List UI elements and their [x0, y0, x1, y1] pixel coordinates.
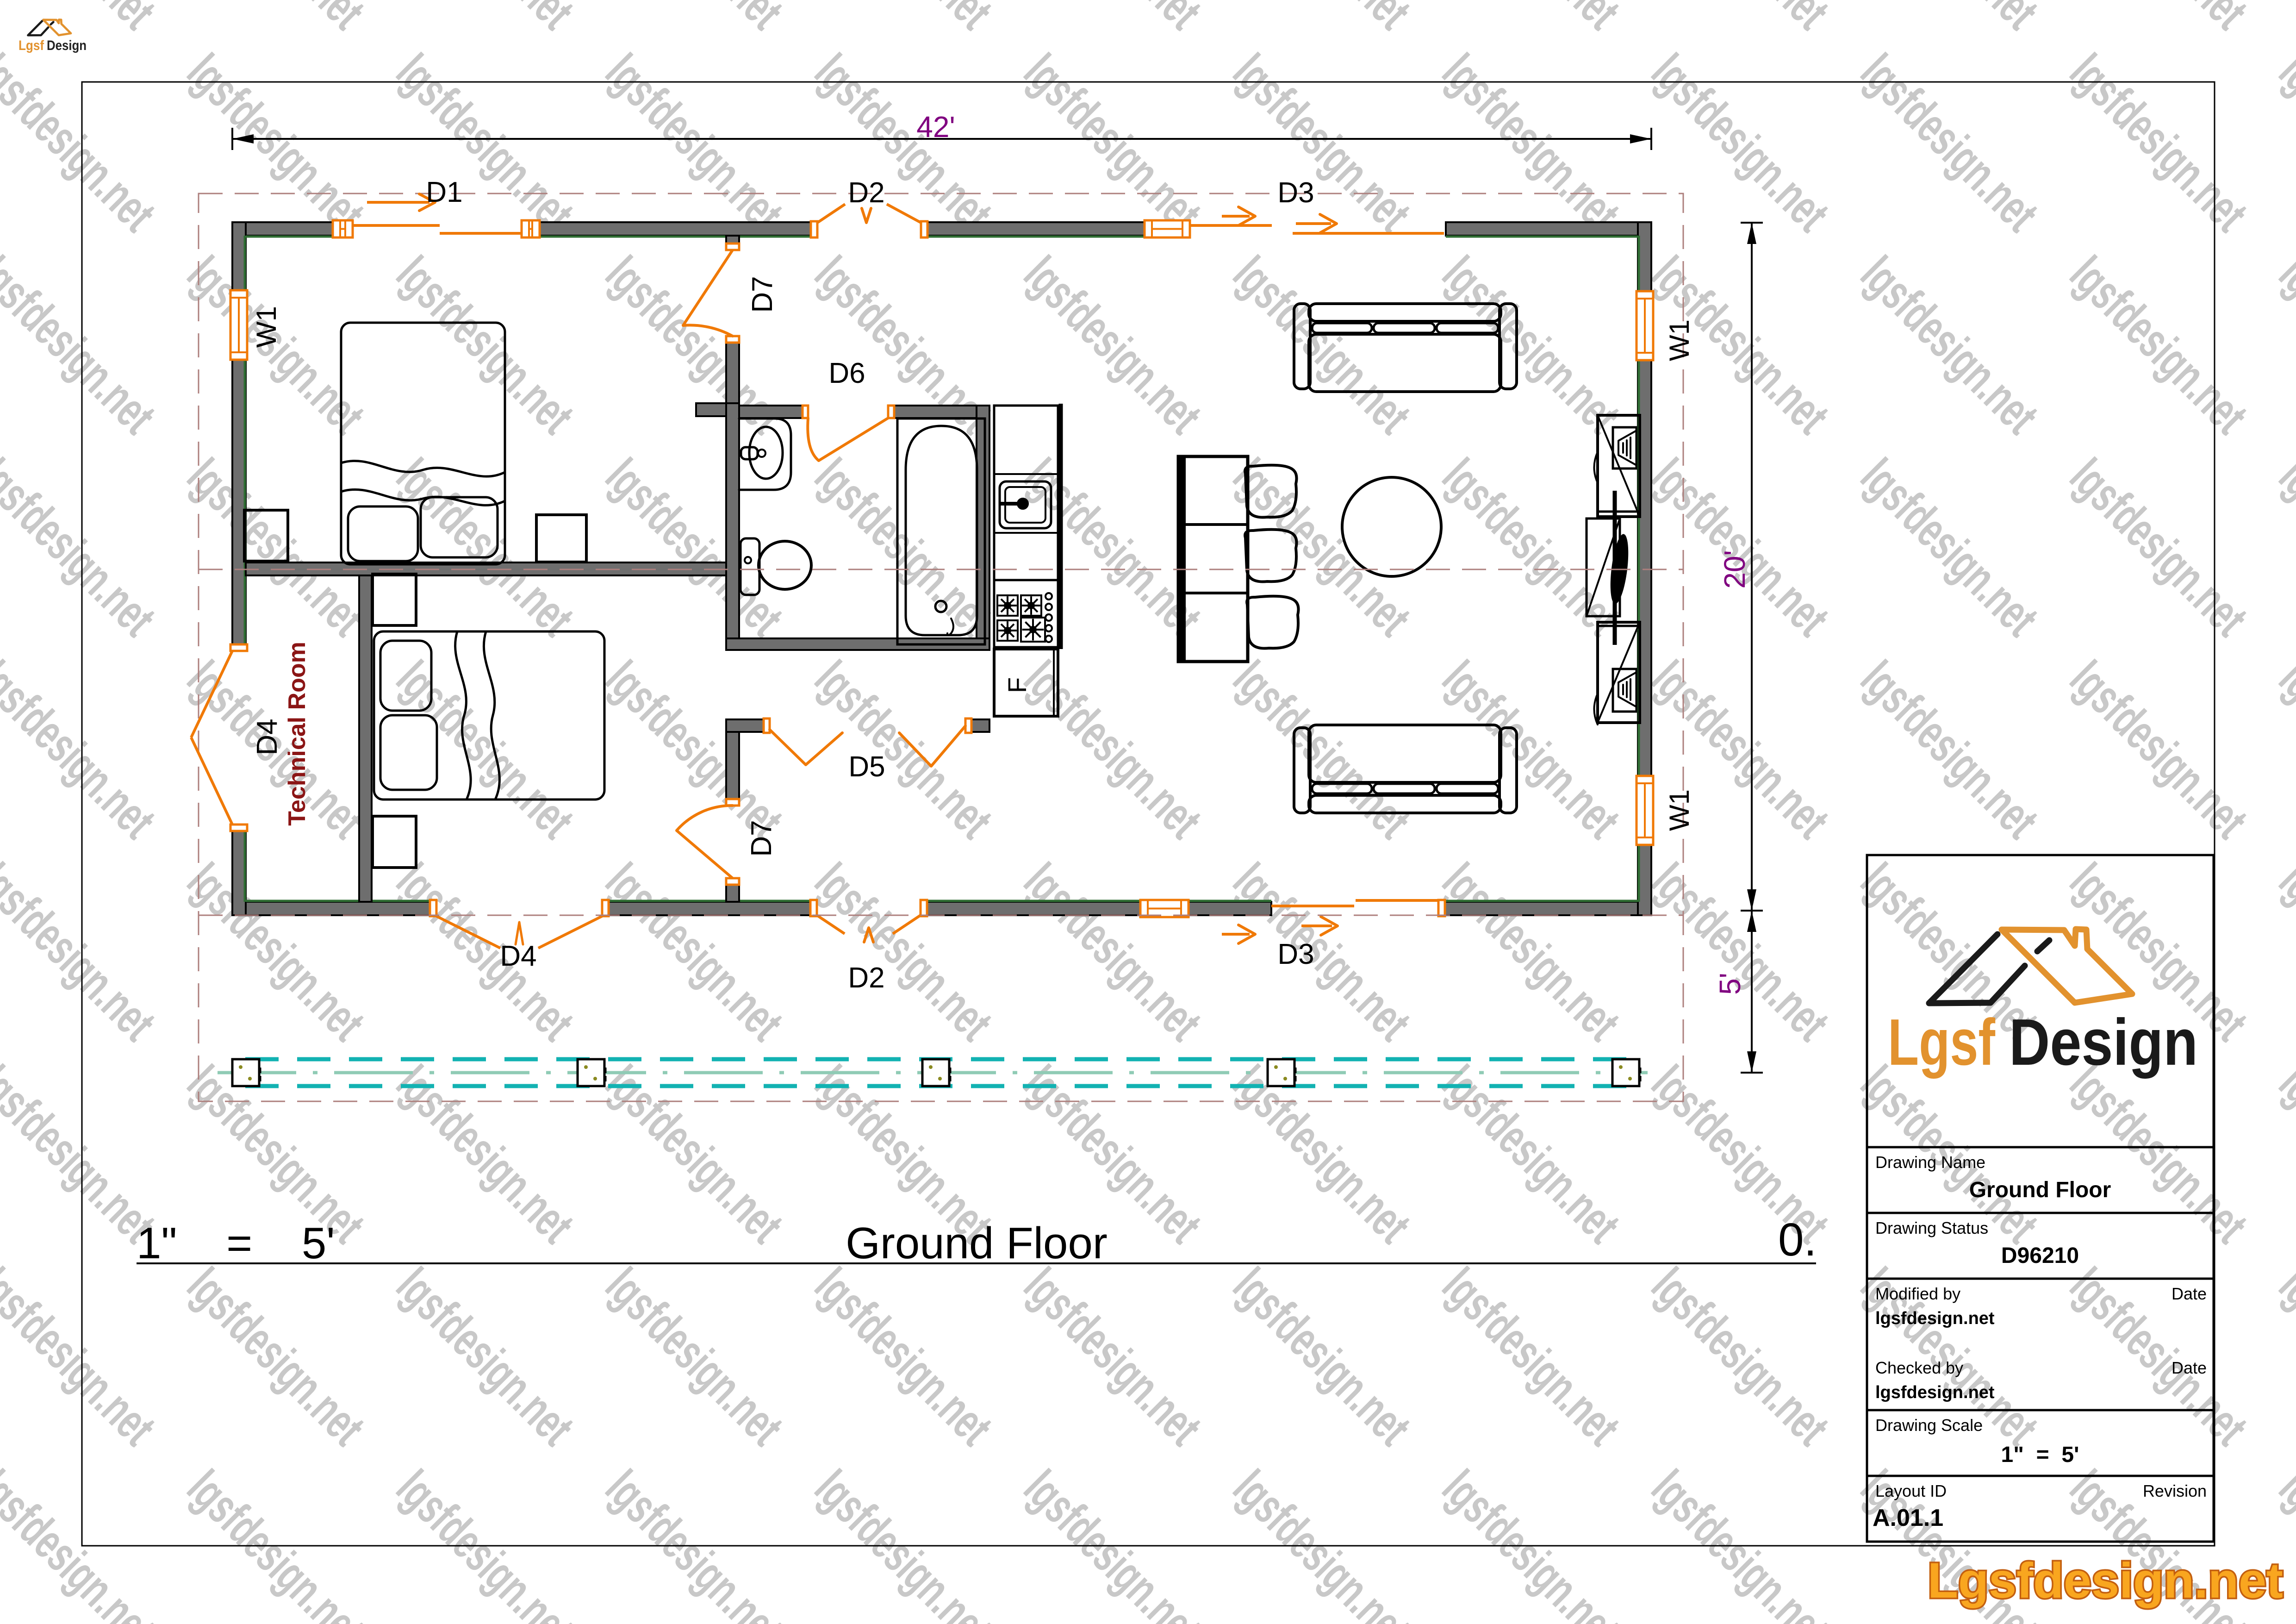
svg-text:Revision: Revision	[2143, 1481, 2207, 1500]
svg-text:lgsfdesign.net: lgsfdesign.net	[1851, 44, 2049, 242]
svg-text:1" = 5': 1" = 5'	[2001, 1443, 2079, 1467]
svg-text:Drawing Scale: Drawing Scale	[1875, 1416, 1983, 1435]
svg-text:D2: D2	[848, 962, 884, 994]
svg-text:lgsfdesign.net: lgsfdesign.net	[386, 853, 585, 1051]
svg-text:lgsfdesign.net: lgsfdesign.net	[1014, 650, 1213, 849]
svg-text:lgsfdesign.net: lgsfdesign.net	[1223, 246, 1422, 444]
svg-text:D96210: D96210	[2001, 1243, 2079, 1268]
svg-text:lgsfdesign.net: lgsfdesign.net	[1432, 44, 1631, 242]
svg-text:lgsfdesign.net: lgsfdesign.net	[1875, 1383, 1995, 1402]
svg-text:lgsfdesign.net: lgsfdesign.net	[1432, 0, 1631, 39]
svg-text:D5: D5	[848, 751, 885, 783]
svg-text:D4: D4	[500, 940, 536, 972]
svg-text:lgsfdesign.net: lgsfdesign.net	[1432, 853, 1631, 1051]
svg-text:D3: D3	[1277, 177, 1314, 209]
svg-text:lgsfdesign.net: lgsfdesign.net	[1223, 853, 1422, 1051]
svg-text:lgsfdesign.net: lgsfdesign.net	[1223, 0, 1422, 39]
svg-text:Drawing Name: Drawing Name	[1875, 1153, 1985, 1172]
svg-text:D4: D4	[251, 718, 283, 755]
svg-text:lgsfdesign.net: lgsfdesign.net	[0, 1257, 166, 1456]
svg-text:lgsfdesign.net: lgsfdesign.net	[386, 1257, 585, 1456]
svg-text:lgsfdesign.net: lgsfdesign.net	[2060, 650, 2259, 849]
svg-text:20': 20'	[1718, 550, 1751, 588]
svg-text:lgsfdesign.net: lgsfdesign.net	[1223, 650, 1422, 849]
svg-text:lgsfdesign.net: lgsfdesign.net	[386, 1460, 585, 1624]
svg-text:W1: W1	[1664, 789, 1695, 831]
svg-text:lgsfdesign.net: lgsfdesign.net	[386, 0, 585, 39]
svg-text:Design: Design	[2009, 1006, 2198, 1079]
svg-text:lgsfdesign.net: lgsfdesign.net	[2060, 1257, 2259, 1456]
svg-text:Ground Floor: Ground Floor	[846, 1218, 1108, 1268]
svg-text:lgsfdesign.net: lgsfdesign.net	[1223, 44, 1422, 242]
svg-text:lgsfdesign.net: lgsfdesign.net	[1642, 1257, 1840, 1456]
svg-text:lgsfdesign.net: lgsfdesign.net	[0, 246, 166, 444]
svg-text:Drawing Status: Drawing Status	[1875, 1218, 1988, 1237]
svg-text:Technical Room: Technical Room	[284, 642, 311, 826]
svg-text:lgsfdesign.net: lgsfdesign.net	[2269, 246, 2296, 444]
svg-text:lgsfdesign.net: lgsfdesign.net	[1642, 44, 1840, 242]
svg-text:lgsfdesign.net: lgsfdesign.net	[1851, 448, 2049, 647]
svg-text:lgsfdesign.net: lgsfdesign.net	[805, 853, 1003, 1051]
svg-text:D7: D7	[747, 276, 778, 312]
svg-text:lgsfdesign.net: lgsfdesign.net	[805, 1460, 1003, 1624]
svg-text:lgsfdesign.net: lgsfdesign.net	[2060, 1055, 2259, 1254]
svg-text:lgsfdesign.net: lgsfdesign.net	[596, 853, 794, 1051]
svg-text:lgsfdesign.net: lgsfdesign.net	[2269, 1257, 2296, 1456]
svg-text:0.: 0.	[1778, 1214, 1817, 1266]
svg-text:5': 5'	[1713, 973, 1747, 995]
svg-text:Date: Date	[2172, 1284, 2207, 1303]
svg-text:Lgsf: Lgsf	[19, 38, 44, 53]
svg-text:Modified by: Modified by	[1875, 1284, 1960, 1303]
svg-text:lgsfdesign.net: lgsfdesign.net	[177, 1460, 376, 1624]
svg-text:F: F	[1002, 677, 1032, 693]
svg-text:lgsfdesign.net: lgsfdesign.net	[1223, 1460, 1422, 1624]
svg-text:D3: D3	[1277, 938, 1314, 970]
svg-text:lgsfdesign.net: lgsfdesign.net	[0, 0, 166, 39]
svg-text:lgsfdesign.net: lgsfdesign.net	[596, 650, 794, 849]
svg-text:D7: D7	[746, 820, 778, 856]
svg-text:lgsfdesign.net: lgsfdesign.net	[177, 1257, 376, 1456]
svg-text:lgsfdesign.net: lgsfdesign.net	[805, 650, 1003, 849]
svg-text:lgsfdesign.net: lgsfdesign.net	[1642, 853, 1840, 1051]
svg-text:Layout ID: Layout ID	[1875, 1481, 1947, 1500]
svg-text:lgsfdesign.net: lgsfdesign.net	[805, 1257, 1003, 1456]
svg-text:Ground Floor: Ground Floor	[1969, 1178, 2111, 1202]
svg-text:Lgsf: Lgsf	[1888, 1006, 1996, 1079]
svg-text:lgsfdesign.net: lgsfdesign.net	[1642, 448, 1840, 647]
svg-text:lgsfdesign.net: lgsfdesign.net	[0, 448, 166, 647]
svg-text:lgsfdesign.net: lgsfdesign.net	[1432, 650, 1631, 849]
svg-text:lgsfdesign.net: lgsfdesign.net	[1223, 1257, 1422, 1456]
svg-text:lgsfdesign.net: lgsfdesign.net	[386, 246, 585, 444]
svg-text:lgsfdesign.net: lgsfdesign.net	[0, 853, 166, 1051]
svg-text:D2: D2	[848, 177, 884, 209]
svg-text:lgsfdesign.net: lgsfdesign.net	[386, 44, 585, 242]
svg-text:lgsfdesign.net: lgsfdesign.net	[2269, 44, 2296, 242]
svg-text:lgsfdesign.net: lgsfdesign.net	[2060, 0, 2259, 39]
svg-text:lgsfdesign.net: lgsfdesign.net	[2269, 650, 2296, 849]
svg-text:lgsfdesign.net: lgsfdesign.net	[2269, 853, 2296, 1051]
svg-text:lgsfdesign.net: lgsfdesign.net	[2060, 246, 2259, 444]
svg-text:lgsfdesign.net: lgsfdesign.net	[805, 0, 1003, 39]
svg-text:lgsfdesign.net: lgsfdesign.net	[596, 1257, 794, 1456]
svg-text:42': 42'	[916, 110, 955, 144]
svg-text:lgsfdesign.net: lgsfdesign.net	[2269, 1055, 2296, 1254]
svg-text:W1: W1	[1664, 319, 1695, 361]
svg-text:lgsfdesign.net: lgsfdesign.net	[1014, 853, 1213, 1051]
svg-text:lgsfdesign.net: lgsfdesign.net	[177, 44, 376, 242]
svg-text:D6: D6	[828, 357, 865, 389]
svg-text:Date: Date	[2172, 1358, 2207, 1377]
svg-text:W1: W1	[251, 306, 282, 348]
svg-text:lgsfdesign.net: lgsfdesign.net	[1642, 1460, 1840, 1624]
svg-text:lgsfdesign.net: lgsfdesign.net	[0, 650, 166, 849]
svg-text:lgsfdesign.net: lgsfdesign.net	[1875, 1309, 1995, 1328]
svg-text:lgsfdesign.net: lgsfdesign.net	[596, 1460, 794, 1624]
svg-text:lgsfdesign.net: lgsfdesign.net	[1014, 1257, 1213, 1456]
svg-text:lgsfdesign.net: lgsfdesign.net	[1014, 0, 1213, 39]
svg-text:lgsfdesign.net: lgsfdesign.net	[596, 0, 794, 39]
svg-text:lgsfdesign.net: lgsfdesign.net	[1851, 0, 2049, 39]
svg-text:lgsfdesign.net: lgsfdesign.net	[1432, 1257, 1631, 1456]
svg-text:A.01.1: A.01.1	[1873, 1505, 1943, 1531]
svg-text:lgsfdesign.net: lgsfdesign.net	[1642, 0, 1840, 39]
svg-text:lgsfdesign.net: lgsfdesign.net	[0, 44, 166, 242]
svg-text:lgsfdesign.net: lgsfdesign.net	[0, 1460, 166, 1624]
svg-text:Design: Design	[47, 38, 87, 53]
svg-text:lgsfdesign.net: lgsfdesign.net	[2269, 448, 2296, 647]
svg-text:lgsfdesign.net: lgsfdesign.net	[596, 44, 794, 242]
svg-text:lgsfdesign.net: lgsfdesign.net	[1014, 1460, 1213, 1624]
svg-text:lgsfdesign.net: lgsfdesign.net	[2060, 448, 2259, 647]
svg-text:D1: D1	[426, 176, 462, 208]
svg-text:lgsfdesign.net: lgsfdesign.net	[1014, 44, 1213, 242]
svg-text:Lgsfdesign.net: Lgsfdesign.net	[1928, 1552, 2283, 1608]
svg-text:lgsfdesign.net: lgsfdesign.net	[805, 448, 1003, 647]
svg-text:Checked by: Checked by	[1875, 1358, 1963, 1377]
svg-text:lgsfdesign.net: lgsfdesign.net	[177, 0, 376, 39]
svg-text:lgsfdesign.net: lgsfdesign.net	[1851, 650, 2049, 849]
svg-text:lgsfdesign.net: lgsfdesign.net	[2060, 44, 2259, 242]
svg-text:1" = 5': 1" = 5'	[137, 1218, 335, 1268]
svg-text:lgsfdesign.net: lgsfdesign.net	[2269, 0, 2296, 39]
svg-text:lgsfdesign.net: lgsfdesign.net	[1851, 246, 2049, 444]
svg-text:lgsfdesign.net: lgsfdesign.net	[1014, 246, 1213, 444]
svg-text:lgsfdesign.net: lgsfdesign.net	[1432, 1460, 1631, 1624]
svg-text:lgsfdesign.net: lgsfdesign.net	[177, 853, 376, 1051]
svg-text:lgsfdesign.net: lgsfdesign.net	[177, 448, 376, 647]
